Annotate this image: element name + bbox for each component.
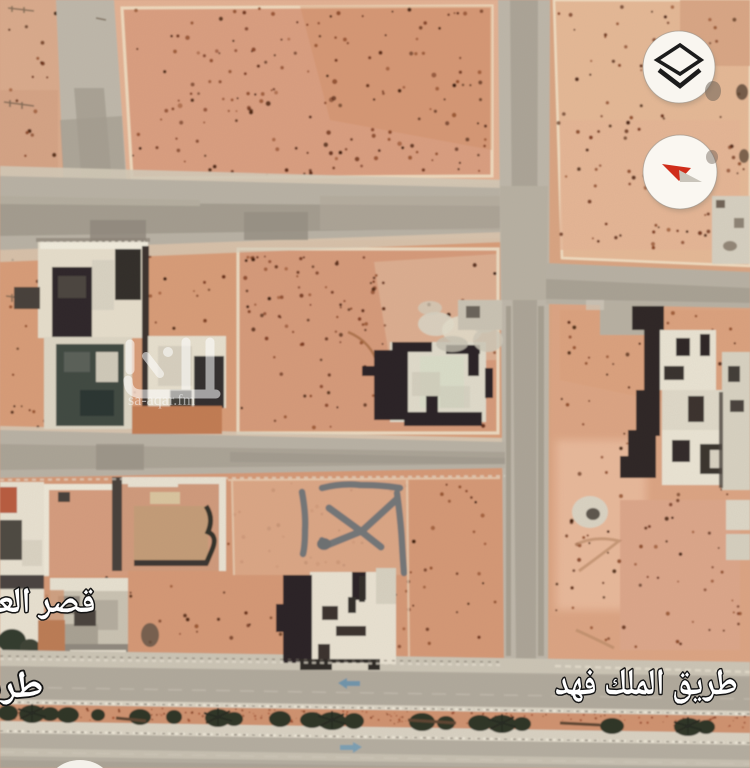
svg-text:sa-aqar.fm: sa-aqar.fm: [128, 392, 196, 409]
